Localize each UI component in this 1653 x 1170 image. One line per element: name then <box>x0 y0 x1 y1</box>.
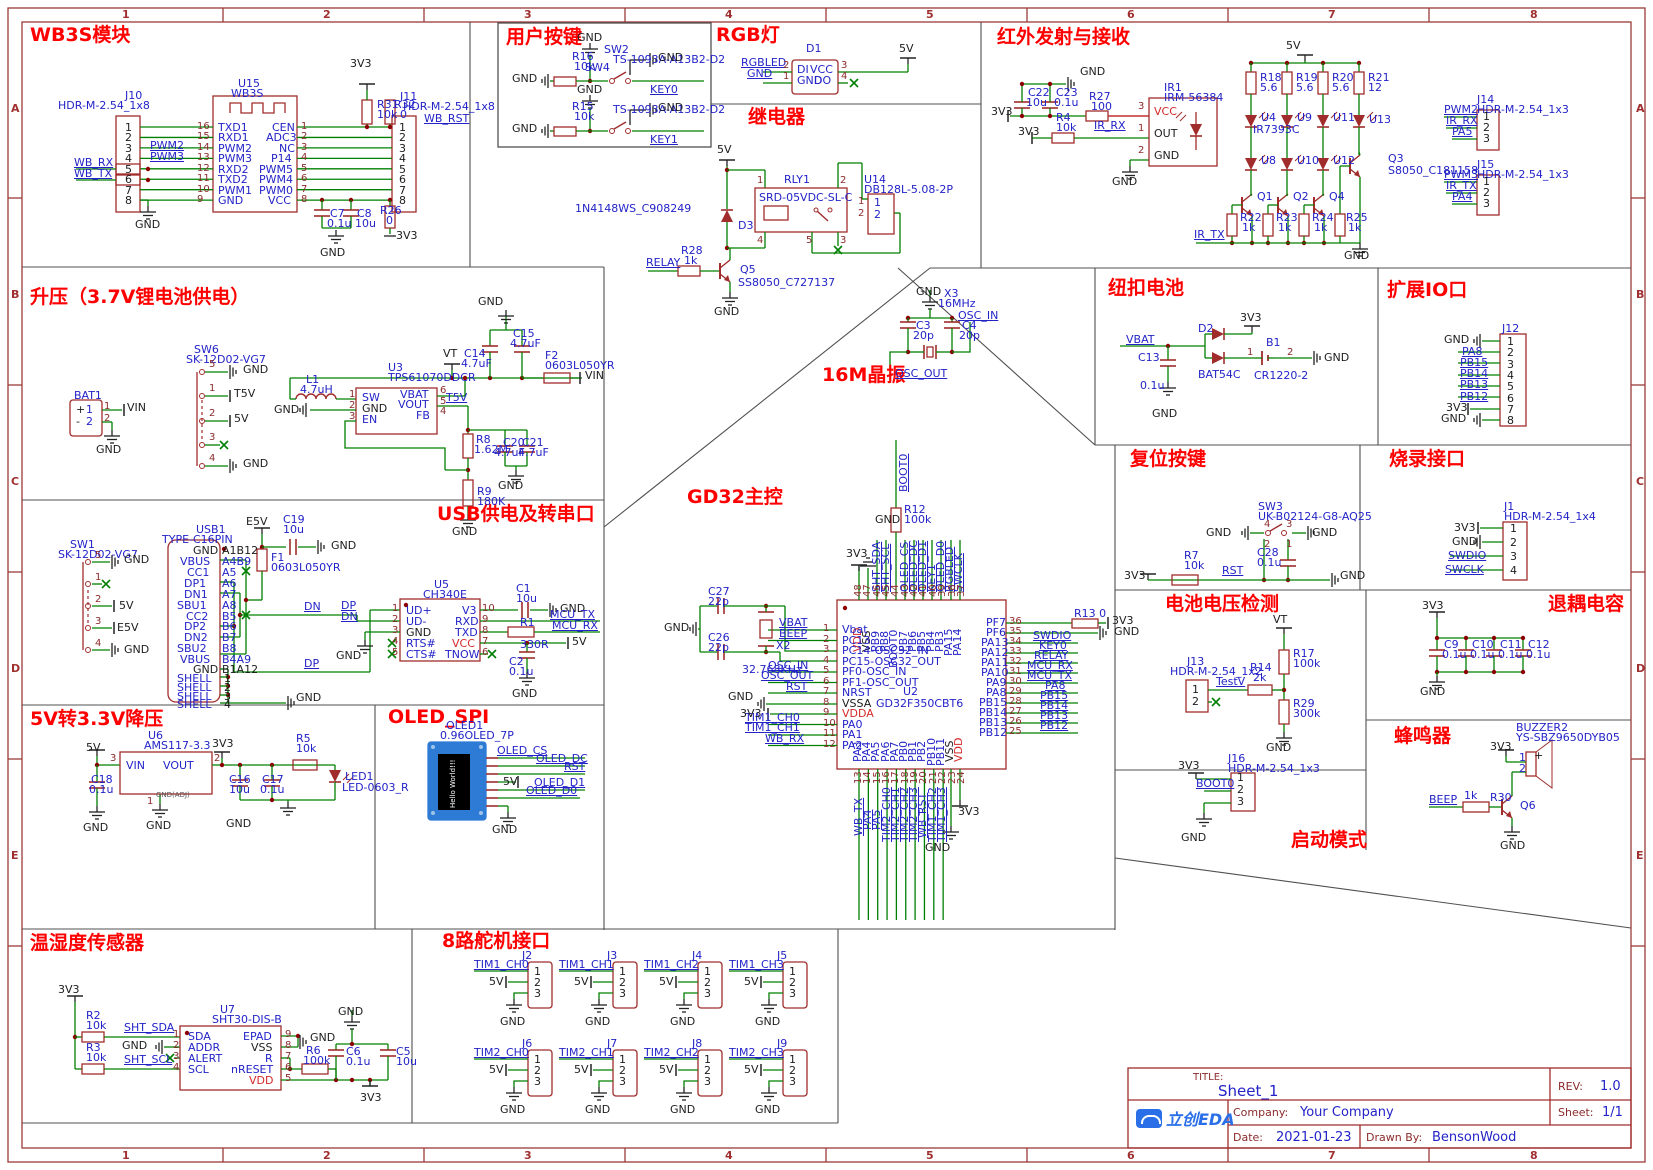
pin-number: 1 <box>858 197 864 207</box>
ref-label: CR1220-2 <box>1254 370 1308 381</box>
block-title-vbat-detect: 电池电压检测 <box>1165 595 1279 614</box>
frame-row-left: D <box>11 663 20 674</box>
pin-number: 1 <box>1237 772 1244 783</box>
eda-logo-icon <box>1136 1109 1162 1128</box>
text-label: 3V3 <box>1454 522 1476 533</box>
net-label: KEY0 <box>650 84 678 95</box>
text-label: T5V <box>234 388 255 399</box>
text-label: GND <box>243 364 268 375</box>
company-value: Your Company <box>1300 1105 1394 1120</box>
frame-row-right: E <box>1636 850 1644 861</box>
ref-label: IRM-56384 <box>1164 92 1223 103</box>
frame-col-bottom: 2 <box>323 1150 331 1161</box>
frame-row-left: A <box>11 103 20 114</box>
block-title-reset-key: 复位按键 <box>1130 450 1206 469</box>
ref-label: GND(ADJ) <box>156 792 190 799</box>
pin-number: 2 <box>173 1041 179 1051</box>
pin-number: 3 <box>840 236 846 246</box>
text-label: GND <box>670 1016 695 1027</box>
pin-number: 3 <box>704 988 711 999</box>
pin-number: 2 <box>95 595 101 605</box>
pin-number: 1 <box>1192 684 1199 695</box>
net-label: BEEP <box>1429 794 1457 805</box>
ref-label: U9 <box>1297 112 1312 123</box>
ref-label: VDD <box>953 738 964 762</box>
pin-number: 3 <box>209 433 215 443</box>
net-label: SHT_SCL <box>124 1054 172 1065</box>
ref-label: 0.96OLED_7P <box>440 730 514 741</box>
ref-label: U10 <box>1297 155 1319 166</box>
ref-label: U8 <box>1261 155 1276 166</box>
pin-number: 4 <box>209 454 215 464</box>
ref-label: 5.6 <box>1296 82 1314 93</box>
ref-label: UK-B02124-G8-AQ25 <box>1258 511 1372 522</box>
frame-col-bottom: 5 <box>926 1150 934 1161</box>
ref-label: 0.1u <box>346 1056 370 1067</box>
text-label: GND <box>1500 840 1525 851</box>
pin-number: 2 <box>392 615 398 625</box>
ref-label: 0603L050YR <box>271 562 340 573</box>
ref-label: 1N4148WS_C908249 <box>575 203 691 214</box>
ref-label: 4.7uH <box>300 384 333 395</box>
pin-number: 4 <box>1510 565 1517 576</box>
frame-row-right: B <box>1636 289 1644 300</box>
pin-number: 1 <box>1247 348 1253 358</box>
frame-col-top: 3 <box>524 9 532 20</box>
net-label: TestV <box>1216 676 1245 687</box>
ref-label: U12 <box>1333 155 1355 166</box>
text-label: GND <box>925 842 950 853</box>
ref-label: 100k <box>1293 658 1320 669</box>
ref-label: SRD-05VDC-SL-C <box>759 192 852 203</box>
text-label: GND <box>1206 527 1231 538</box>
text-label: 3V3 <box>1018 126 1040 137</box>
frame-col-top: 5 <box>926 9 934 20</box>
ref-label: D1 <box>806 43 821 54</box>
ref-label: HDR-M-2.54_1x3 <box>1477 169 1569 180</box>
ref-label: Q1 <box>1257 191 1273 202</box>
ref-label: D2 <box>1198 323 1213 334</box>
ref-label: SS8050_C727137 <box>738 277 835 288</box>
pin-number: 4 <box>95 639 101 649</box>
net-label: PB12 <box>1040 720 1068 731</box>
net-label: TIM2_CH3 <box>729 1047 784 1058</box>
ref-label: DB128L-5.08-2P <box>864 184 953 195</box>
net-label: DP <box>304 658 319 669</box>
net-label: IR_TX <box>1194 229 1225 240</box>
pin-number: 1 <box>1286 540 1292 550</box>
frame-col-top: 2 <box>323 9 331 20</box>
text-label: GND <box>1452 536 1477 547</box>
ref-label: VDD <box>249 1075 273 1086</box>
pin-number: 6 <box>440 386 446 396</box>
net-label: GND <box>747 68 772 79</box>
net-label: OLED_D0 <box>526 785 577 796</box>
text-label: 3V3 <box>740 708 762 719</box>
frame-row-right: A <box>1636 103 1645 114</box>
text-label: GND <box>585 1016 610 1027</box>
pin-number: 3 <box>823 645 829 655</box>
pin-number: 2 <box>349 401 355 411</box>
ref-label: 10k <box>574 111 594 122</box>
ref-label: 4.7uF <box>518 447 549 458</box>
ref-label: Q2 <box>1293 191 1309 202</box>
text-label: GND <box>492 824 517 835</box>
ref-label: 1k <box>1348 222 1361 233</box>
text-label: + <box>1534 750 1543 761</box>
ref-label: 100k <box>303 1055 330 1066</box>
pin-number: 6 <box>482 648 488 658</box>
pin-number: 2 <box>1287 348 1293 358</box>
ref-label: SW4 <box>585 62 610 73</box>
net-label: PA5 <box>1452 126 1472 137</box>
ref-label: PA14 <box>952 629 963 656</box>
pin-number: 1 <box>1510 523 1517 534</box>
net-label: BEEP <box>779 628 807 639</box>
block-title-xtal-16m: 16M晶振 <box>822 366 905 385</box>
text-label: E5V <box>246 516 267 527</box>
pin-number: 2 <box>104 414 110 424</box>
pin-number: 3 <box>349 412 355 422</box>
ref-label: 100 <box>1091 101 1112 112</box>
block-title-exp-io: 扩展IO口 <box>1387 281 1467 300</box>
pin-number: 2 <box>840 176 846 186</box>
sheet-num-value: 1/1 <box>1602 1105 1623 1120</box>
pin-number: 6 <box>823 677 829 687</box>
ref-label: 0.1u <box>1498 649 1522 660</box>
pin-number: 4 <box>392 637 398 647</box>
text-label: 3V3 <box>1490 741 1512 752</box>
ref-label: 1k <box>1278 222 1291 233</box>
pin-number: 5 <box>95 551 101 561</box>
net-label: MCU_RX <box>552 620 598 631</box>
ref-label: LED-0603_R <box>342 782 409 793</box>
pin-number: 2 <box>209 409 215 419</box>
pin-number: 24 <box>957 771 967 784</box>
text-label: GND <box>512 123 537 134</box>
block-title-burn-port: 烧录接口 <box>1389 450 1465 469</box>
ref-label: 0.1u <box>327 218 351 229</box>
pin-number: 7 <box>285 1052 291 1062</box>
ref-label: GND <box>218 195 243 206</box>
net-label: PWM3 <box>150 151 184 162</box>
ref-label: 5.6 <box>1332 82 1350 93</box>
ref-label: 1k <box>1464 790 1477 801</box>
text-label: GND <box>296 692 321 703</box>
text-label: GND <box>452 526 477 537</box>
ref-label: J12 <box>1502 323 1519 334</box>
pin-number: 6 <box>285 1063 291 1073</box>
net-label: TIM1_CH3 <box>936 787 947 842</box>
pin-number: 10 <box>823 719 836 729</box>
pin-number: 9 <box>823 708 829 718</box>
text-label: GND <box>83 822 108 833</box>
text-label: GND <box>664 622 689 633</box>
block-title-buzzer: 蜂鸣器 <box>1394 727 1451 746</box>
pin-number: 37 <box>957 584 967 597</box>
pin-number: 5 <box>285 1074 291 1084</box>
text-label: GND <box>577 84 602 95</box>
pin-number: 5 <box>806 236 812 246</box>
text-label: GND <box>274 404 299 415</box>
text-label: GND <box>512 688 537 699</box>
schematic-sheet[interactable]: WB3S模块升压（3.7V锂电池供电）用户按键RGB灯继电器红外发射与接收纽扣电… <box>0 0 1653 1170</box>
ref-label: 1k <box>684 255 697 266</box>
ref-label: RLY1 <box>784 174 810 185</box>
text-label: GND <box>755 1016 780 1027</box>
pin-number: 2 <box>1510 537 1517 548</box>
net-label: RST <box>564 761 585 772</box>
pin-number: 13 <box>197 153 210 163</box>
pin-number: 4 <box>440 407 446 417</box>
text-label: GND <box>478 296 503 307</box>
ref-label: BAT1 <box>74 390 102 401</box>
ref-label: HDR-M-2.54_1x3 <box>1477 104 1569 115</box>
text-label: GND <box>1324 352 1349 363</box>
ref-label: 0.1u <box>509 666 533 677</box>
pin-number: 1 <box>104 402 110 412</box>
pin-number: 3 <box>789 988 796 999</box>
text-label: GND <box>243 458 268 469</box>
net-label: PB13 <box>1460 379 1488 390</box>
block-title-relay: 继电器 <box>748 108 805 127</box>
pin-number: 11 <box>197 174 210 184</box>
text-label: GND <box>1152 408 1177 419</box>
pin-number: 1 <box>757 176 763 186</box>
text-label: GND <box>336 650 361 661</box>
ref-label: BAT54C <box>1198 369 1241 380</box>
ref-label: 5.6 <box>1260 82 1278 93</box>
net-label: PA4 <box>1452 191 1472 202</box>
ref-label: 10u <box>396 1056 417 1067</box>
pin-number: 1 <box>349 390 355 400</box>
net-label: WB_RX <box>765 733 804 744</box>
text-label: GND <box>1344 250 1369 261</box>
ref-label: 10u <box>1026 97 1047 108</box>
block-title-decoupling: 退耦电容 <box>1548 595 1624 614</box>
pin-number: 3 <box>789 1076 796 1087</box>
text-label: GND <box>728 691 753 702</box>
text-label: 5V <box>1286 40 1301 51</box>
text-label: 3V3 <box>350 58 372 69</box>
pin-number: 1 <box>823 624 829 634</box>
pin-number: 3 <box>1507 359 1514 370</box>
pin-number: 3 <box>534 1076 541 1087</box>
text-label: GND <box>310 1032 335 1043</box>
text-label: GND <box>1154 150 1179 161</box>
text-label: GND <box>96 444 121 455</box>
text-label: 3V3 <box>360 1092 382 1103</box>
ref-label: 1 <box>86 404 93 415</box>
text-label: GND <box>122 1040 147 1051</box>
ref-label: B1 <box>1266 337 1281 348</box>
text-label: GND <box>146 820 171 831</box>
text-label: E5V <box>117 622 138 633</box>
pin-number: 2 <box>1192 696 1199 707</box>
ref-label: 22p <box>708 642 729 653</box>
text-label: GND <box>577 32 602 43</box>
ref-label: U4 <box>1261 112 1276 123</box>
frame-row-right: D <box>1636 663 1645 674</box>
ref-label: CTS# <box>406 649 437 660</box>
block-title-sht30: 温湿度传感器 <box>30 934 144 953</box>
text-label: GND <box>1420 686 1445 697</box>
pin-number: 1 <box>392 604 398 614</box>
pin-number: 1 <box>1138 124 1144 134</box>
text-label: GND <box>658 52 683 63</box>
text-label: 3V3 <box>58 984 80 995</box>
net-label: BOOT0 <box>1196 778 1234 789</box>
text-label: GND <box>500 1016 525 1027</box>
pin-number: 3 <box>1483 198 1490 209</box>
ref-label: 0.1u <box>1442 649 1466 660</box>
frame-col-top: 1 <box>122 9 130 20</box>
ref-label: TNOW <box>445 649 479 660</box>
pin-number: 2 <box>1138 146 1144 156</box>
sheet-num-label: Sheet: <box>1558 1106 1594 1119</box>
ref-label: Q3 <box>1388 153 1404 164</box>
pin-number: 5 <box>392 648 398 658</box>
ref-label: TPS61070DDCR <box>388 372 476 383</box>
net-label: SWCLK <box>1445 564 1484 575</box>
pin-number: 2 <box>1507 347 1514 358</box>
pin-number: 3 <box>1286 520 1292 530</box>
pin-number: 8 <box>399 195 406 206</box>
frame-row-left: C <box>11 476 19 487</box>
text-label: 3V3 <box>1178 760 1200 771</box>
ref-label: 1k <box>1314 222 1327 233</box>
net-label: WB_TX <box>74 168 112 179</box>
ref-label: GD32F350CBT6 <box>876 698 963 709</box>
ref-label: 10u <box>229 784 250 795</box>
ref-label: CH340E <box>423 589 467 600</box>
text-label: 4 <box>224 699 231 710</box>
ref-label: 180K <box>477 496 505 507</box>
ref-label: 10u <box>283 524 304 535</box>
ref-label: U11 <box>1333 112 1355 123</box>
block-title-coin-cell: 纽扣电池 <box>1108 279 1184 298</box>
frame-row-left: B <box>11 289 19 300</box>
ref-label: Q5 <box>740 264 756 275</box>
text-label: 3V3 <box>1422 600 1444 611</box>
pin-number: 2 <box>874 209 881 220</box>
text-label: - <box>76 416 80 427</box>
ref-label: HDR-M-2.54_1x4 <box>1504 511 1596 522</box>
pin-number: 3 <box>1237 796 1244 807</box>
ref-label: 0.1u <box>89 784 113 795</box>
text-label: 3V3 <box>846 548 868 559</box>
block-title-ir: 红外发射与接收 <box>997 28 1130 47</box>
ref-label: 0.1u <box>1054 97 1078 108</box>
pin-number: 2 <box>1237 784 1244 795</box>
pin-number: 8 <box>482 626 488 636</box>
pin-number: 6 <box>301 174 307 184</box>
pin-number: 4 <box>757 236 763 246</box>
ref-label: HDR-M-2.54_1x8 <box>58 100 150 111</box>
pin-number: 3 <box>619 1076 626 1087</box>
text-label: 3V3 <box>991 106 1013 117</box>
net-label: KEY1 <box>650 134 678 145</box>
text-label: 5V <box>744 1064 759 1075</box>
pin-number: 5 <box>1507 381 1514 392</box>
ref-label: 1k <box>1242 222 1255 233</box>
pin-number: 1 <box>209 384 215 394</box>
text-label: 5V <box>899 43 914 54</box>
net-label: SWDIO <box>1448 550 1486 561</box>
ref-label: 2 <box>1519 763 1526 774</box>
ref-label: AMS117-3.3 <box>144 740 210 751</box>
net-label: OSC_IN <box>958 310 998 321</box>
ref-label: 10u <box>516 593 537 604</box>
pin-number: 2 <box>214 754 220 764</box>
text-label: 5V <box>574 976 589 987</box>
sheet-title: Sheet_1 <box>1218 1082 1278 1100</box>
text-label: GND <box>124 644 149 655</box>
text-label: VT <box>443 348 457 359</box>
pin-number: 4 <box>1264 520 1270 530</box>
pin-number: 7 <box>482 637 488 647</box>
ref-label: R13 0 <box>1074 608 1106 619</box>
date-value: 2021-01-23 <box>1276 1130 1352 1145</box>
net-label: TIM2_CH1 <box>559 1047 614 1058</box>
ref-label: 0.1u <box>1470 649 1494 660</box>
pin-number: 6 <box>1507 393 1514 404</box>
ref-label: U13 <box>1369 114 1391 125</box>
ref-label: HDR-M-2.54_1x8 <box>403 101 495 112</box>
frame-col-bottom: 8 <box>1530 1150 1538 1161</box>
net-label: TIM1_CH3 <box>729 959 784 970</box>
text-label: 5V <box>489 1064 504 1075</box>
pin-number: 3 <box>1138 102 1144 112</box>
net-label: TIM1_CH1 <box>559 959 614 970</box>
ref-label: VOUT <box>163 760 194 771</box>
ref-label: 0.1u <box>1526 649 1550 660</box>
pin-number: 3 <box>534 988 541 999</box>
ref-label: 10k <box>86 1052 106 1063</box>
ref-label: 16MHz <box>938 298 976 309</box>
company-label: Company: <box>1233 1106 1288 1119</box>
text-label: GND <box>500 1104 525 1115</box>
ref-label: 10k <box>296 743 316 754</box>
text-label: 3V3 <box>212 738 234 749</box>
text-label: GND <box>1112 176 1137 187</box>
text-label: GND <box>1444 334 1469 345</box>
ref-label: 4.7uF <box>461 358 492 369</box>
frame-row-left: E <box>11 850 19 861</box>
ref-label: 0.1u <box>1140 380 1164 391</box>
pin-number: 4 <box>173 1063 179 1073</box>
pin-number: 1 <box>147 797 153 807</box>
text-label: GND <box>1340 570 1365 581</box>
text-label: GND <box>1181 832 1206 843</box>
pin-number: 3 <box>841 61 847 71</box>
frame-col-bottom: 3 <box>524 1150 532 1161</box>
frame-row-right: C <box>1636 476 1644 487</box>
text-label: GND <box>320 247 345 258</box>
pin-number: 5 <box>440 397 446 407</box>
block-title-rgb-led: RGB灯 <box>716 26 780 45</box>
net-label: T5V <box>446 392 467 403</box>
text-label: GND <box>1080 66 1105 77</box>
pin-number: 8 <box>301 195 307 205</box>
ref-label: 32.768KHz <box>742 664 802 675</box>
text-label: 5V <box>119 600 134 611</box>
block-title-usb: USB供电及转串口 <box>437 505 595 524</box>
text-label: 5V <box>659 976 674 987</box>
net-label: TIM2_CH2 <box>644 1047 699 1058</box>
text-label: GND <box>331 540 356 551</box>
ref-label: U2 <box>903 686 918 697</box>
